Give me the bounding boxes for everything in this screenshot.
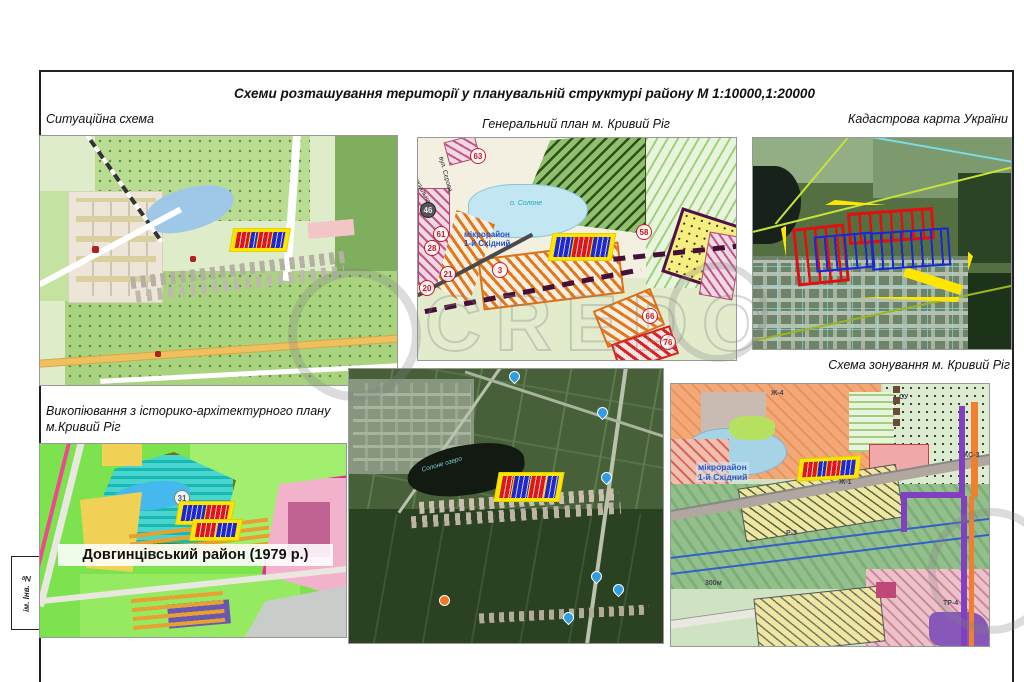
zone-badge: 61 [433, 226, 449, 242]
plot-red-block [204, 505, 229, 521]
magenta-block [876, 582, 896, 598]
plot-red-block [802, 462, 817, 478]
zone-badge: 20 [419, 280, 435, 296]
stamp-vertical-label: ім. Інв. № [22, 574, 31, 612]
zone-badge: 63 [470, 148, 486, 164]
stamp-box: ім. Інв. № [11, 556, 41, 630]
forest-grid [349, 514, 663, 643]
poi-orange-pin [439, 595, 450, 606]
map-satellite: Солоне озеро [348, 368, 664, 644]
forest-strip [335, 136, 397, 271]
map-cadastral [752, 137, 1012, 350]
map-historical-plan: 31 Довгинцівський район (1979 р.) [39, 443, 347, 638]
site-plot-marker [230, 229, 290, 251]
sheet-title: Схеми розташування території у плануваль… [39, 86, 1010, 101]
cadastral-blue-row [870, 227, 951, 270]
map-situational-scheme [39, 135, 398, 386]
green-lined-zone [849, 392, 894, 452]
zone-label: ТР-4 [943, 600, 958, 607]
plot-blue-block [544, 476, 559, 498]
lake-label: о. Солоне [510, 200, 542, 207]
drawing-sheet: ім. Інв. № Схеми розташування території … [0, 0, 1024, 682]
site-plot-marker [798, 456, 861, 480]
zone-label: Ж-1 [839, 479, 852, 486]
purple-boundary-v3 [961, 496, 967, 646]
zone-badge: 76 [660, 334, 676, 350]
label-general-plan: Генеральний план м. Кривий Ріг [417, 117, 735, 131]
label-cadastral: Кадастрова карта України [700, 112, 1008, 126]
zone-badge: 28 [424, 240, 440, 256]
zone-label: КС-3 [964, 452, 979, 459]
map-zoning-scheme: мікрорайон 1-й Східний Ж-4 СУ Р-3 КС-3 Ж… [670, 383, 990, 647]
poi-marker [190, 256, 196, 262]
plot-red-block [826, 460, 841, 476]
green-islet [729, 416, 775, 440]
district-label: мікрорайон 1-й Східний [696, 462, 749, 482]
yellow-patch [102, 444, 142, 466]
orange-boundary [971, 402, 978, 497]
plot-red-block [195, 523, 217, 537]
label-situational: Ситуаційна схема [46, 112, 154, 126]
zone-badge: 3 [492, 262, 508, 278]
orange-boundary2 [969, 496, 974, 646]
yellow-zone-south [753, 586, 885, 647]
zone-label: Р-3 [786, 530, 797, 537]
site-plot-marker [549, 234, 616, 260]
brown-road [893, 383, 900, 426]
label-historical-line1: Викопіювання з історико-архітектурного п… [46, 404, 330, 418]
zone-label: СУ [899, 394, 908, 401]
label-historical-line2: м.Кривий Ріг [46, 420, 121, 434]
zone-label: Ж-4 [771, 390, 784, 397]
purple-boundary-h [903, 492, 965, 498]
plot-blue-block [270, 232, 285, 248]
zone-badge: 58 [636, 224, 652, 240]
map-caption: Довгинцівський район (1979 р.) [58, 544, 333, 566]
district-label: мікрорайон 1-й Східний [464, 230, 510, 248]
plot-blue-block [215, 523, 237, 537]
purple-blob [929, 612, 989, 646]
cadastral-blue-block [814, 231, 876, 272]
poi-marker [155, 351, 161, 357]
forest-dark [958, 173, 1012, 263]
label-zoning: Схема зонування м. Кривий Ріг [700, 358, 1010, 372]
plot-blue-block [181, 505, 206, 521]
plot-blue-block [590, 237, 611, 257]
zone-badge: 21 [440, 266, 456, 282]
zone-badge-dark: 46 [420, 202, 436, 218]
purple-boundary-v2 [901, 492, 907, 532]
zone-badge: 66 [642, 308, 658, 324]
site-plot-marker [495, 473, 564, 501]
zone-label: 300м [705, 580, 722, 587]
poi-marker [92, 246, 99, 253]
map-general-plan: о. Солоне ул. Вокзальная вул. Сєрова мік… [417, 137, 737, 361]
site-plot-marker2 [190, 520, 242, 540]
plot-blue-block [840, 460, 855, 476]
